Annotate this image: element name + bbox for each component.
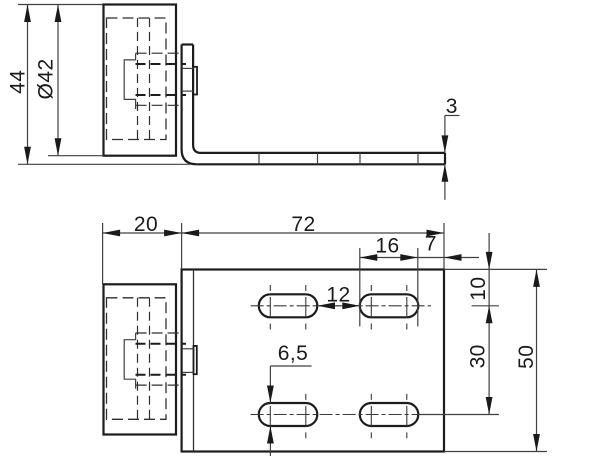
svg-text:30: 30 — [467, 344, 490, 368]
svg-text:72: 72 — [291, 213, 315, 236]
svg-text:12: 12 — [326, 284, 350, 307]
svg-text:10: 10 — [467, 277, 490, 301]
svg-text:Ø42: Ø42 — [35, 58, 58, 99]
svg-text:50: 50 — [515, 345, 538, 369]
svg-text:44: 44 — [7, 70, 30, 94]
svg-text:6,5: 6,5 — [278, 342, 308, 365]
svg-text:3: 3 — [446, 95, 458, 118]
svg-text:7: 7 — [425, 233, 437, 256]
svg-text:16: 16 — [375, 235, 399, 258]
svg-text:20: 20 — [134, 213, 158, 236]
